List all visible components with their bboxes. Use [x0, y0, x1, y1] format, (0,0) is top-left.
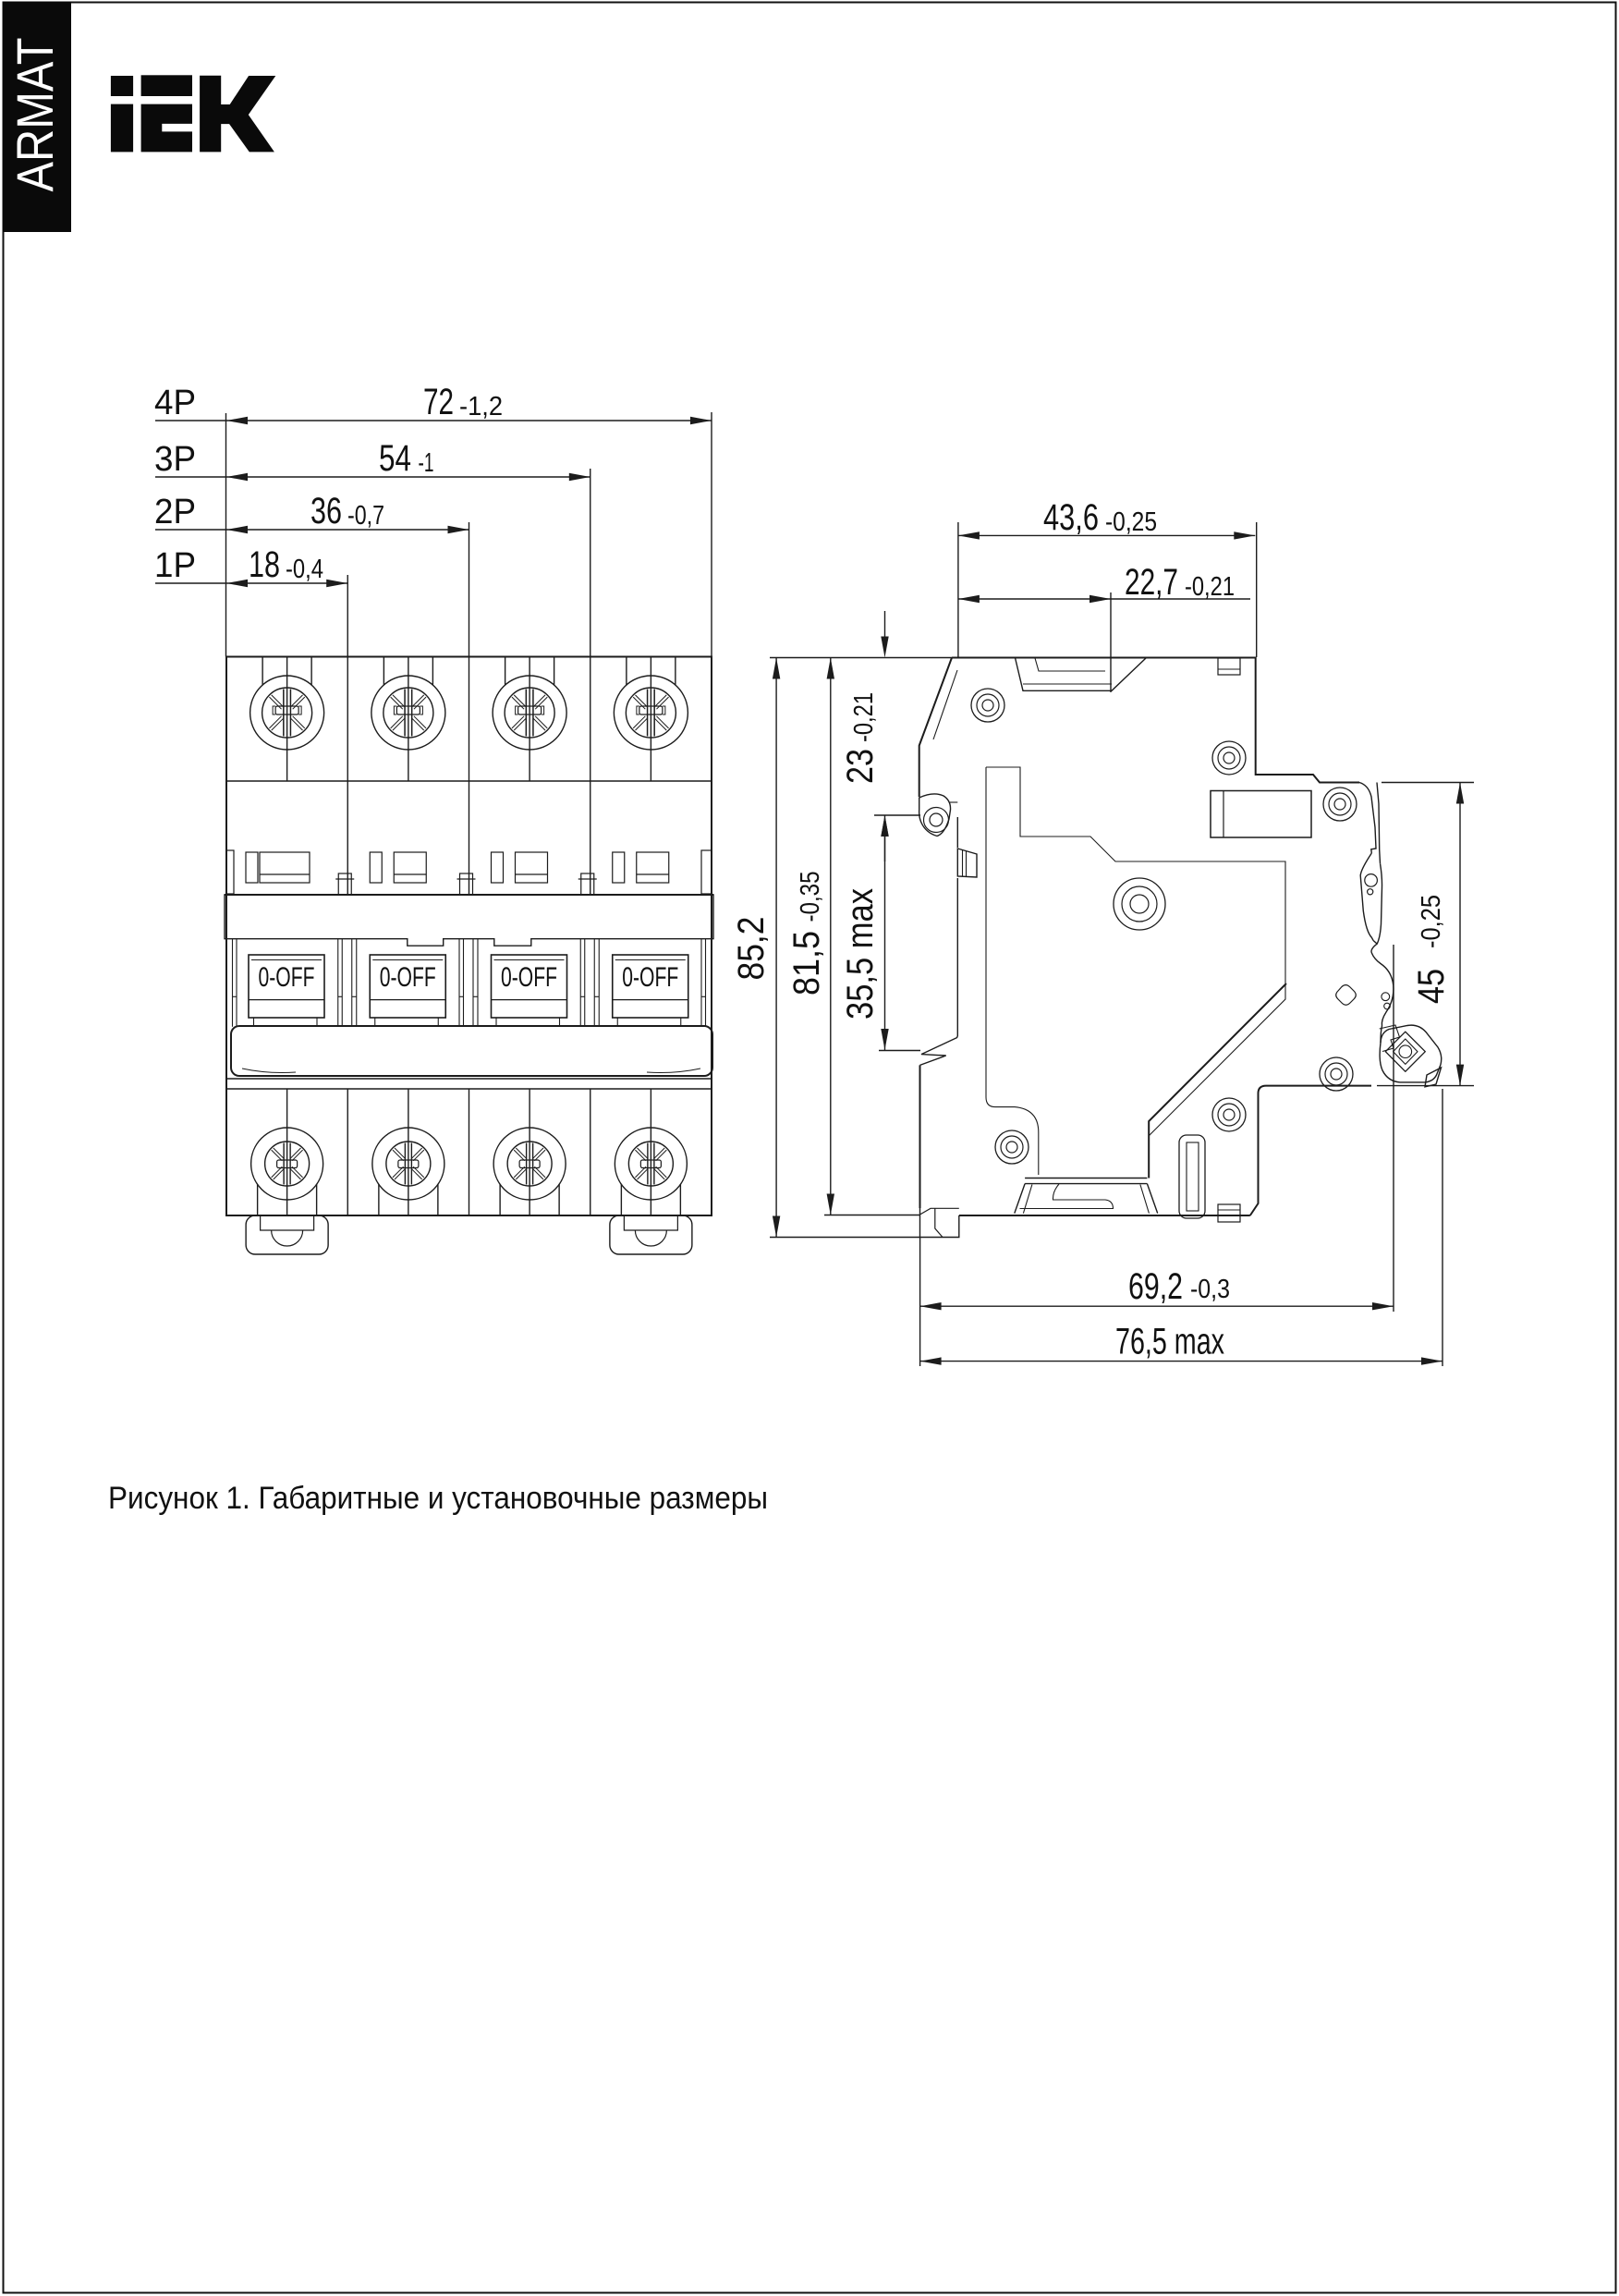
svg-text:-1,2: -1,2 — [459, 392, 503, 421]
svg-text:43,6: 43,6 — [1043, 497, 1099, 538]
svg-text:72: 72 — [423, 382, 454, 422]
svg-text:1P: 1P — [154, 546, 196, 585]
svg-text:69,2: 69,2 — [1128, 1266, 1183, 1307]
svg-text:-0,4: -0,4 — [286, 555, 323, 584]
svg-text:-1: -1 — [419, 448, 434, 478]
svg-text:-0,3: -0,3 — [1190, 1275, 1230, 1304]
svg-text:54: 54 — [379, 438, 411, 479]
svg-text:ARMAT: ARMAT — [6, 38, 64, 192]
svg-text:-0,25: -0,25 — [1105, 507, 1157, 537]
svg-text:-0,21: -0,21 — [1185, 572, 1235, 602]
svg-text:35,5 max: 35,5 max — [840, 888, 881, 1020]
svg-text:-0,21: -0,21 — [849, 692, 879, 742]
svg-text:3P: 3P — [154, 440, 196, 479]
svg-text:18: 18 — [249, 544, 280, 585]
svg-text:0-OFF: 0-OFF — [259, 962, 315, 993]
svg-text:0-OFF: 0-OFF — [622, 962, 678, 993]
svg-text:0-OFF: 0-OFF — [501, 962, 557, 993]
svg-text:0-OFF: 0-OFF — [380, 962, 436, 993]
svg-text:-0,7: -0,7 — [347, 501, 384, 531]
svg-text:Рисунок 1. Габаритные и устано: Рисунок 1. Габаритные и установочные раз… — [108, 1481, 768, 1516]
svg-text:2P: 2P — [154, 493, 196, 531]
svg-text:-0,25: -0,25 — [1417, 895, 1446, 948]
svg-text:76,5 max: 76,5 max — [1115, 1322, 1224, 1362]
svg-text:36: 36 — [310, 491, 342, 531]
svg-text:4P: 4P — [154, 384, 196, 422]
svg-text:22,7: 22,7 — [1125, 562, 1178, 603]
svg-text:81,5: 81,5 — [786, 931, 827, 995]
svg-text:-0,35: -0,35 — [796, 872, 825, 922]
svg-text:85,2: 85,2 — [731, 917, 772, 981]
svg-text:45: 45 — [1411, 969, 1452, 1004]
svg-text:23: 23 — [840, 749, 881, 784]
